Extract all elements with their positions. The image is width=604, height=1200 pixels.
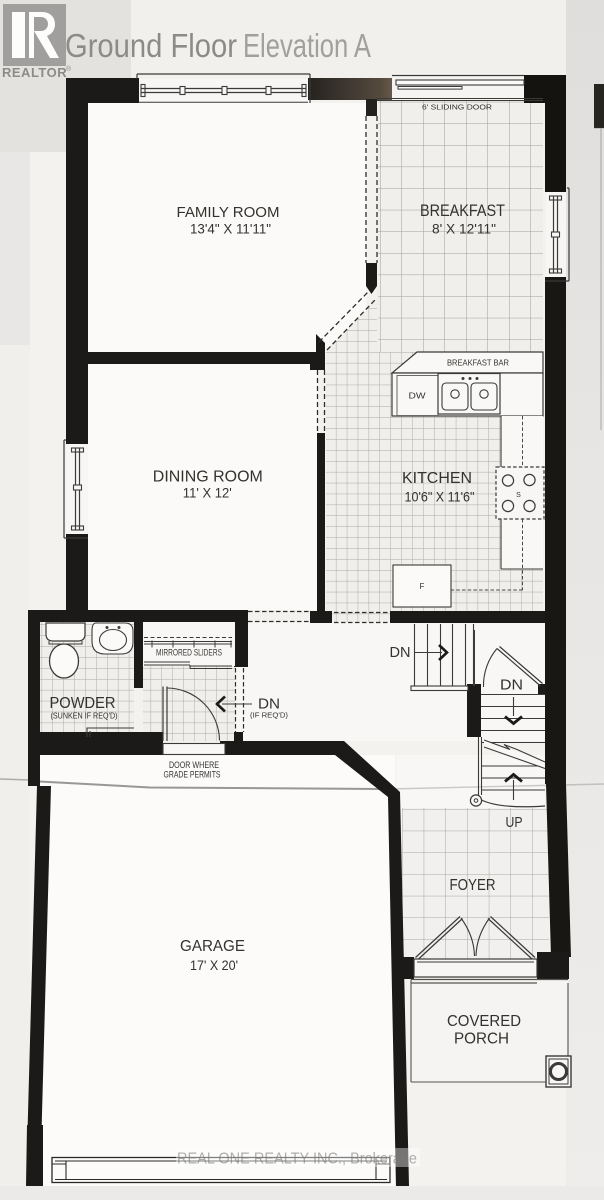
svg-text:POWDER: POWDER <box>50 695 116 712</box>
svg-text:GARAGE: GARAGE <box>180 938 245 955</box>
svg-text:13'4" X 11'11": 13'4" X 11'11" <box>190 221 271 237</box>
svg-text:(SUNKEN IF REQ'D): (SUNKEN IF REQ'D) <box>51 711 118 721</box>
svg-text:S: S <box>516 492 521 499</box>
svg-text:FAMILY ROOM: FAMILY ROOM <box>177 204 280 221</box>
svg-text:11' X 12': 11' X 12' <box>183 485 232 501</box>
svg-text:BREAKFAST BAR: BREAKFAST BAR <box>447 359 509 368</box>
svg-text:UP: UP <box>506 814 523 831</box>
svg-text:GRADE PERMITS: GRADE PERMITS <box>164 770 221 780</box>
svg-text:8' X 12'11": 8' X 12'11" <box>432 221 496 237</box>
svg-text:®: ® <box>66 65 72 73</box>
svg-text:BREAKFAST: BREAKFAST <box>420 201 505 220</box>
svg-text:17' X 20': 17' X 20' <box>190 958 238 973</box>
svg-text:10'6" X 11'6": 10'6" X 11'6" <box>405 489 475 505</box>
svg-text:(IF REQ'D): (IF REQ'D) <box>250 711 288 720</box>
svg-text:DINING ROOM: DINING ROOM <box>153 469 263 486</box>
svg-text:Elevation A: Elevation A <box>243 27 371 64</box>
svg-text:MIRRORED SLIDERS: MIRRORED SLIDERS <box>156 648 222 659</box>
svg-text:REALTOR: REALTOR <box>2 65 67 80</box>
svg-text:DW: DW <box>409 392 426 401</box>
svg-text:DOOR WHERE: DOOR WHERE <box>169 760 219 770</box>
svg-text:6' SLIDING DOOR: 6' SLIDING DOOR <box>422 103 493 112</box>
svg-text:F: F <box>420 582 425 591</box>
svg-text:DN: DN <box>390 644 411 661</box>
svg-text:REAL ONE REALTY INC., Brokera: REAL ONE REALTY INC., Brokerage <box>177 1151 417 1168</box>
svg-text:Ground Floor: Ground Floor <box>65 27 237 64</box>
svg-text:COVERED: COVERED <box>447 1013 521 1030</box>
svg-text:DN: DN <box>500 678 523 694</box>
svg-text:PORCH: PORCH <box>454 1031 509 1048</box>
svg-text:FOYER: FOYER <box>450 877 496 894</box>
svg-text:KITCHEN: KITCHEN <box>402 470 472 487</box>
